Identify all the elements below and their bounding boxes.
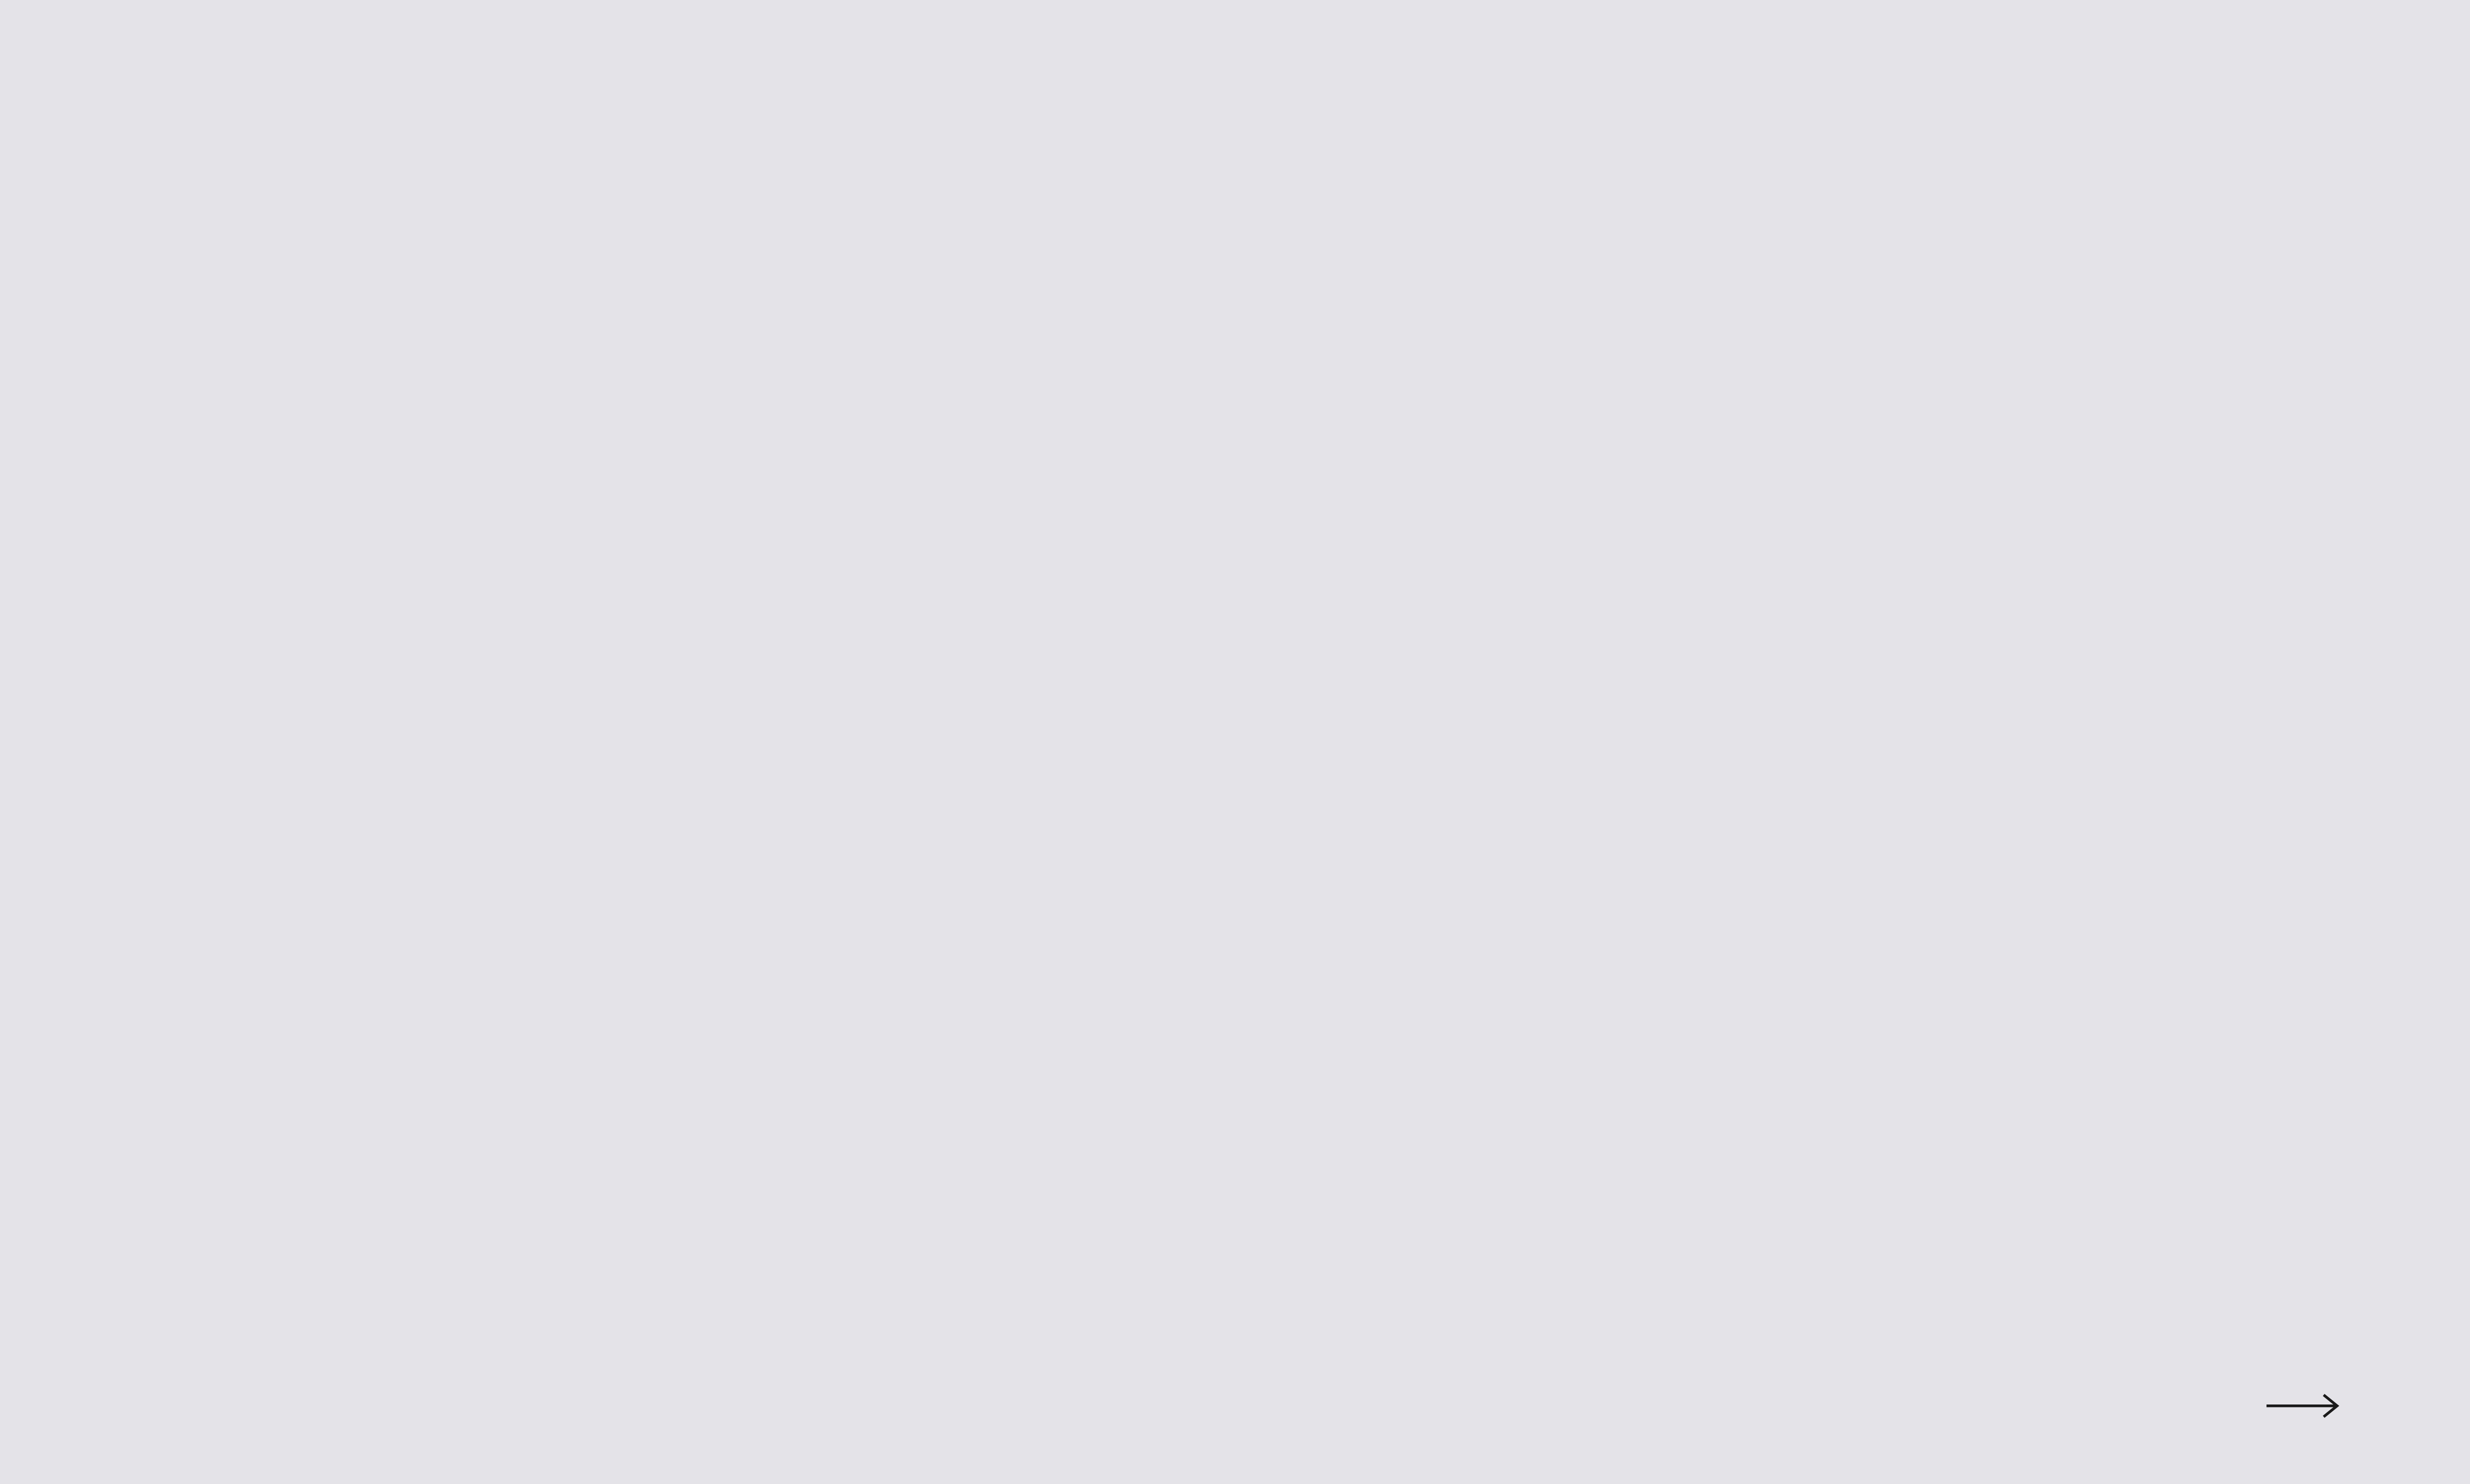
labels-layer xyxy=(2266,1395,2337,1417)
site-plan-drawing xyxy=(0,0,2470,1484)
arrow-right-icon xyxy=(2266,1395,2337,1417)
site-plan-stage xyxy=(0,0,2470,1484)
